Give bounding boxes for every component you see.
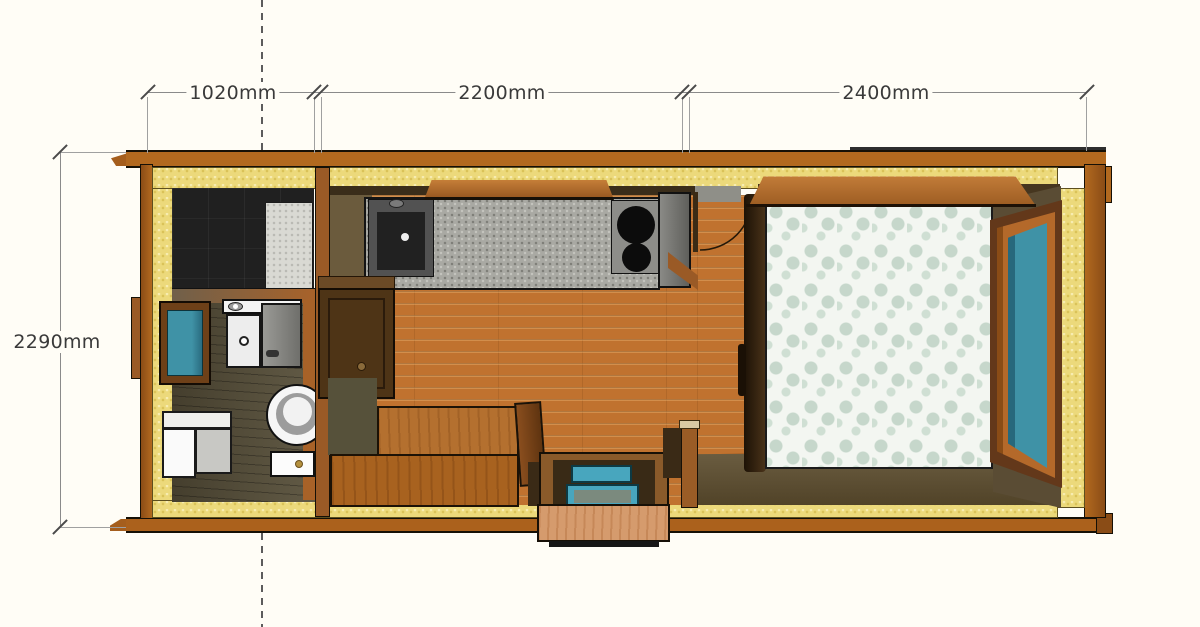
toilet-bowl-clip	[266, 384, 315, 454]
extension-line	[321, 97, 322, 153]
centerline-bottom	[261, 533, 263, 627]
dimension-label-bedroom-width: 2400mm	[839, 82, 932, 104]
wall-right-cladding	[1084, 164, 1106, 518]
kitchen-drain-dot	[401, 233, 409, 241]
bed-side-rail	[744, 194, 766, 472]
dimension-line-top	[148, 92, 1087, 93]
bench-seat	[330, 454, 519, 507]
entry-step	[537, 504, 670, 542]
extension-line	[689, 97, 690, 153]
dimension-label-depth: 2290mm	[10, 331, 103, 353]
centerline-top	[261, 0, 263, 151]
shower-tray	[265, 202, 313, 289]
toilet-flush-button	[295, 460, 303, 468]
vanity-faucet-dot	[233, 304, 238, 309]
extension-line	[147, 97, 148, 153]
storage-box-top	[162, 411, 232, 429]
bathroom-window-glass	[167, 310, 203, 376]
cooktop-burner-small	[622, 243, 651, 272]
bedroom-window-glass	[1008, 223, 1047, 468]
wall-cabinet-knob	[357, 362, 366, 371]
extension-line	[60, 152, 126, 153]
extension-line	[60, 527, 126, 528]
wall-cabinet-door-panel	[328, 298, 385, 389]
bed	[765, 202, 993, 469]
entry-door-glass-upper	[571, 465, 632, 483]
toilet-seat-center	[283, 397, 312, 426]
extension-line	[1086, 97, 1087, 151]
headboard-shelf	[746, 174, 1036, 206]
entry-side-post	[681, 424, 698, 508]
bench-back	[377, 406, 519, 457]
storage-box-side	[195, 428, 232, 474]
partition-face-living	[328, 378, 377, 455]
vanity-cabinet	[261, 303, 302, 368]
cooktop-burner-large	[617, 206, 655, 244]
floor-plan-canvas: 1020mm 2200mm 2400mm 2290mm	[0, 0, 1200, 627]
bed-rail-handle	[738, 344, 746, 396]
overhead-shelf	[424, 180, 614, 200]
dimension-label-bathroom-width: 1020mm	[186, 82, 279, 104]
vanity-knob	[239, 336, 249, 346]
entry-door-glass-lower-inner	[574, 490, 631, 503]
kitchen-sink-basin	[377, 212, 425, 270]
entry-side-post-cap	[679, 420, 700, 429]
entry-step-shadow	[549, 541, 659, 547]
bathroom-window-sill	[131, 297, 141, 379]
headboard-shelf-edge	[746, 204, 1036, 207]
vanity-cabinet-handle	[266, 350, 279, 357]
extension-line	[314, 97, 315, 153]
entry-side-panel	[663, 428, 682, 478]
extension-line	[682, 97, 683, 153]
storage-box-front	[162, 428, 196, 478]
dimension-label-kitchen-width: 2200mm	[455, 82, 548, 104]
wall-top-cladding	[126, 150, 1106, 168]
kitchen-faucet	[389, 199, 404, 208]
toilet-base	[270, 451, 315, 477]
